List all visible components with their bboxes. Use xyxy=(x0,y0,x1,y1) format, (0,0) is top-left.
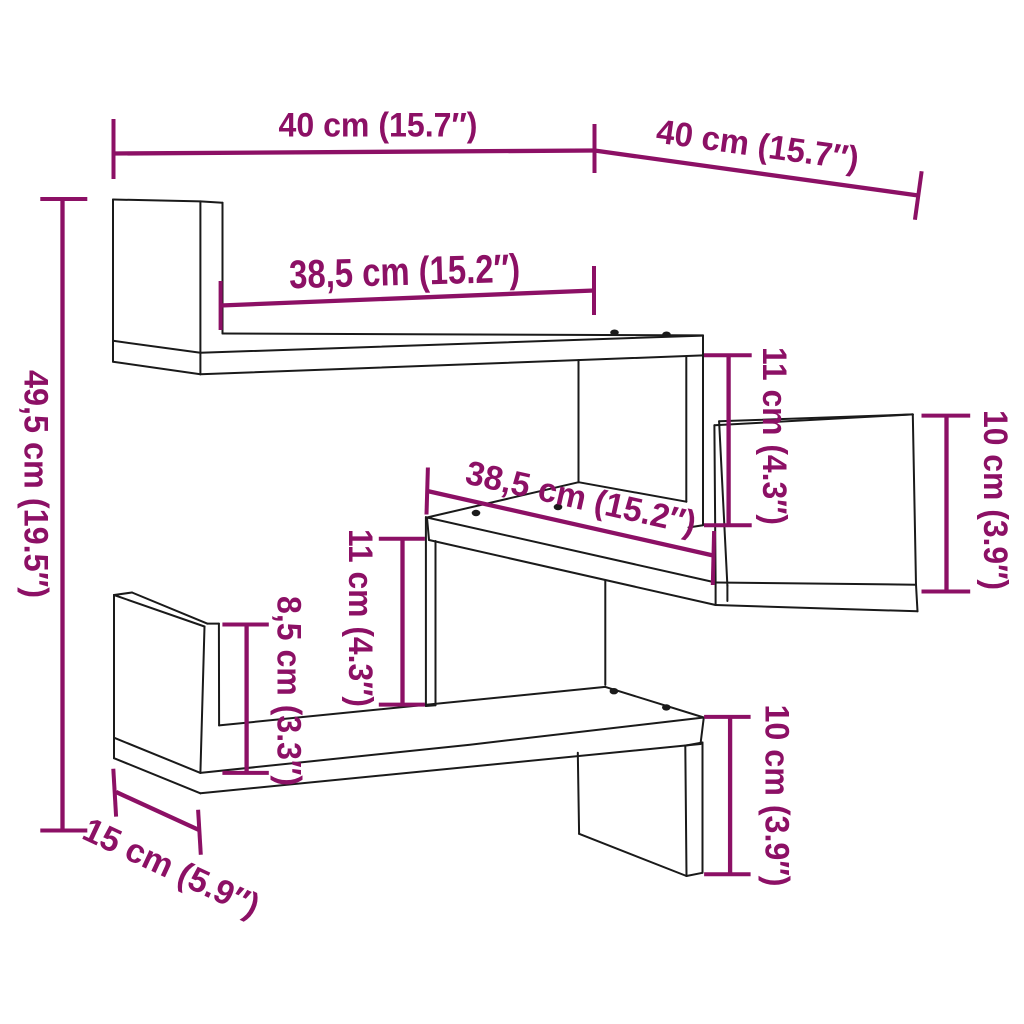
svg-text:49,5 cm (19.5″): 49,5 cm (19.5″) xyxy=(17,370,55,598)
svg-text:40 cm (15.7″): 40 cm (15.7″) xyxy=(279,107,478,145)
svg-text:11 cm (4.3″): 11 cm (4.3″) xyxy=(755,347,793,525)
svg-text:11 cm (4.3″): 11 cm (4.3″) xyxy=(341,529,379,707)
svg-text:10 cm (3.9″): 10 cm (3.9″) xyxy=(976,410,1014,590)
svg-text:8,5 cm (3.3″): 8,5 cm (3.3″) xyxy=(270,596,308,786)
svg-text:10 cm (3.9″): 10 cm (3.9″) xyxy=(758,705,796,887)
svg-text:38,5 cm (15.2″): 38,5 cm (15.2″) xyxy=(289,247,521,297)
